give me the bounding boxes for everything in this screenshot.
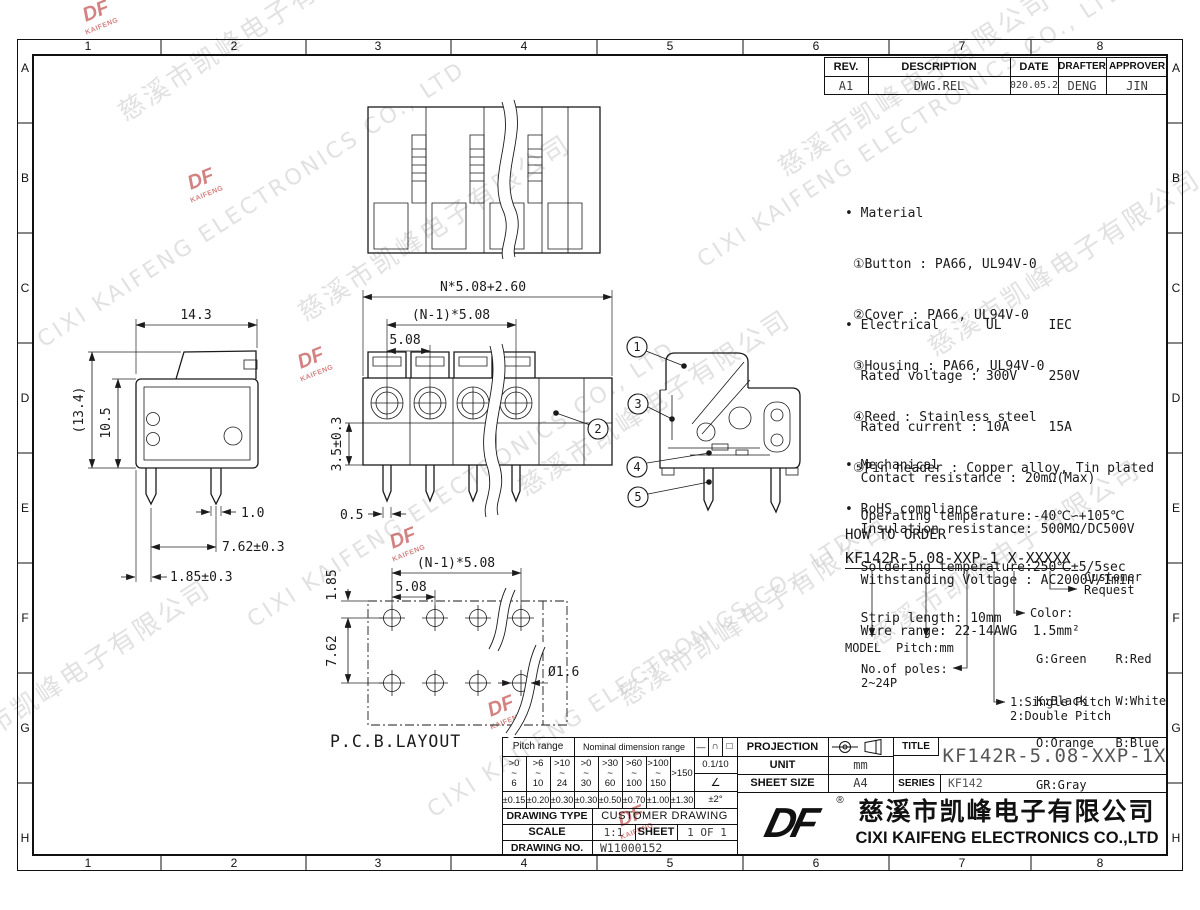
zone-row: H (1169, 831, 1183, 845)
tol-cell: ±0.30 (574, 791, 598, 808)
order-customer-2: Request (1084, 583, 1135, 597)
engineering-drawing-sheet: 慈溪市凯峰电子有限公司 CIXI KAIFENG ELECTRONICS CO.… (0, 0, 1200, 910)
scale-label: SCALE (502, 824, 592, 840)
unit-label: UNIT (737, 756, 828, 774)
zone-col: 8 (1090, 856, 1110, 870)
order-model-label: MODEL (845, 641, 881, 655)
zone-row: H (18, 831, 32, 845)
order-code: KF142R-5.08-XXP-1 X-XXXXX (845, 549, 1071, 567)
drawing-type-label: DRAWING TYPE (502, 808, 592, 824)
zone-row: A (1169, 61, 1183, 75)
rev-value: DENG (1058, 76, 1106, 95)
sheet-label: SHEET (635, 824, 677, 840)
order-poles-range: 2~24P (861, 676, 897, 690)
drawing-no-label: DRAWING NO. (502, 840, 592, 855)
sheet-size-label: SHEET SIZE (737, 774, 828, 792)
tol-cell: ±0.30 (550, 791, 574, 808)
range-cell: >10~24 (550, 756, 574, 791)
zone-row: E (1169, 501, 1183, 515)
range-cell: >0~6 (502, 756, 526, 791)
company-logo: DF (745, 797, 835, 849)
tol-cell: ±0.70 (622, 791, 646, 808)
zone-col: 6 (806, 856, 826, 870)
zone-col: 3 (368, 856, 388, 870)
order-customer-1: Customer (1084, 570, 1142, 584)
drawing-title: KF142R-5.08-XXP-1X (941, 737, 1168, 774)
zone-row: C (1169, 281, 1183, 295)
rev-value: 2020.05.27 (1010, 76, 1058, 95)
material-title: • Material (845, 205, 1154, 222)
company-name-en: CIXI KAIFENG ELECTRONICS CO.,LTD (848, 827, 1166, 849)
unit-value: mm (828, 756, 893, 774)
zone-row: G (1169, 721, 1183, 735)
tol-cell: ±0.50 (598, 791, 622, 808)
zone-col: 4 (514, 856, 534, 870)
projection-label: PROJECTION (737, 737, 828, 756)
rohs-note: • RoHS compliance (845, 501, 978, 518)
zone-col: 5 (660, 39, 680, 53)
color-option: G:Green R:Red (1036, 652, 1166, 666)
range-cell: >30~60 (598, 756, 622, 791)
zone-col: 7 (952, 39, 972, 53)
rev-value: JIN (1106, 76, 1168, 95)
zone-row: D (18, 391, 32, 405)
rev-header: REV. (824, 57, 868, 76)
sheet-size-value: A4 (828, 774, 893, 792)
electrical-title: • Electrical UL IEC (845, 317, 1135, 334)
pitch-range-header: Pitch range (502, 737, 574, 756)
zone-row: G (18, 721, 32, 735)
zone-col: 1 (78, 856, 98, 870)
zone-col: 3 (368, 39, 388, 53)
zone-col: 8 (1090, 39, 1110, 53)
sheet-value: 1 OF 1 (677, 824, 737, 840)
nominal-range-header: Nominal dimension range (574, 737, 694, 756)
range-cell: >0~30 (574, 756, 598, 791)
drawing-no-value: W11000152 (592, 840, 737, 855)
note-line: ①Button : PA66, UL94V-0 (845, 256, 1154, 273)
zone-row: C (18, 281, 32, 295)
tol-cell: ±1.00 (646, 791, 670, 808)
rev-header: DESCRIPTION (868, 57, 1010, 76)
order-title: HOW TO ORDER (845, 527, 946, 544)
title-label: TITLE (893, 737, 939, 756)
zone-col: 2 (224, 39, 244, 53)
angle-tol: ±2° (694, 791, 737, 808)
square-icon: □ (722, 737, 737, 756)
range-cell-last: >150 (670, 756, 694, 791)
range-cell: >100~150 (646, 756, 670, 791)
rev-value: DWG.REL (868, 76, 1010, 95)
series-label: SERIES (893, 774, 940, 792)
note-line: Rated voltage : 300V 250V (845, 368, 1135, 385)
zone-col: 2 (224, 856, 244, 870)
rev-header: DATE (1010, 57, 1058, 76)
zone-row: B (18, 171, 32, 185)
projection-symbol-icon (828, 737, 893, 756)
zone-col: 1 (78, 39, 98, 53)
tol-cell: ±0.20 (526, 791, 550, 808)
zone-col: 7 (952, 856, 972, 870)
angle-icon: ∠ (694, 773, 737, 791)
zone-row: B (1169, 171, 1183, 185)
range-cell: >6~10 (526, 756, 550, 791)
arc-icon: ∩ (708, 737, 722, 756)
zone-col: 6 (806, 39, 826, 53)
tol-cell: ±1.30 (670, 791, 694, 808)
flatness-tol: 0.1/10 (694, 756, 737, 773)
company-name-cn: 慈溪市凯峰电子有限公司 (848, 792, 1166, 827)
zone-row: E (18, 501, 32, 515)
order-code-suffix: X-XXXXX (1008, 549, 1071, 569)
zone-row: F (18, 611, 32, 625)
color-option: K:Black W:White (1036, 694, 1166, 708)
rev-header: DRAFTER (1058, 57, 1106, 76)
range-cell: >60~100 (622, 756, 646, 791)
series-value: KF142 (940, 774, 1168, 792)
zone-row: A (18, 61, 32, 75)
watermark-logo: DFKAIFENG (75, 0, 119, 36)
order-code-main: KF142R-5.08-XXP-1 (845, 549, 999, 569)
rev-header: APPROVER (1106, 57, 1168, 76)
registered-mark: ® (833, 793, 847, 807)
order-poles-label: No.of poles: (861, 662, 948, 676)
straightness-icon: — (694, 737, 708, 756)
scale-value: 1:1 (592, 824, 635, 840)
mechanical-title: • Mechanical (845, 457, 1126, 474)
tol-cell: ±0.15 (502, 791, 526, 808)
zone-row: D (1169, 391, 1183, 405)
rev-value: A1 (824, 76, 868, 95)
order-pitch-label: Pitch:mm (896, 641, 954, 655)
drawing-type-value: CUSTOMER DRAWING (592, 808, 737, 824)
order-color-label: Color: (1030, 606, 1073, 620)
zone-col: 5 (660, 856, 680, 870)
zone-col: 4 (514, 39, 534, 53)
zone-row: F (1169, 611, 1183, 625)
